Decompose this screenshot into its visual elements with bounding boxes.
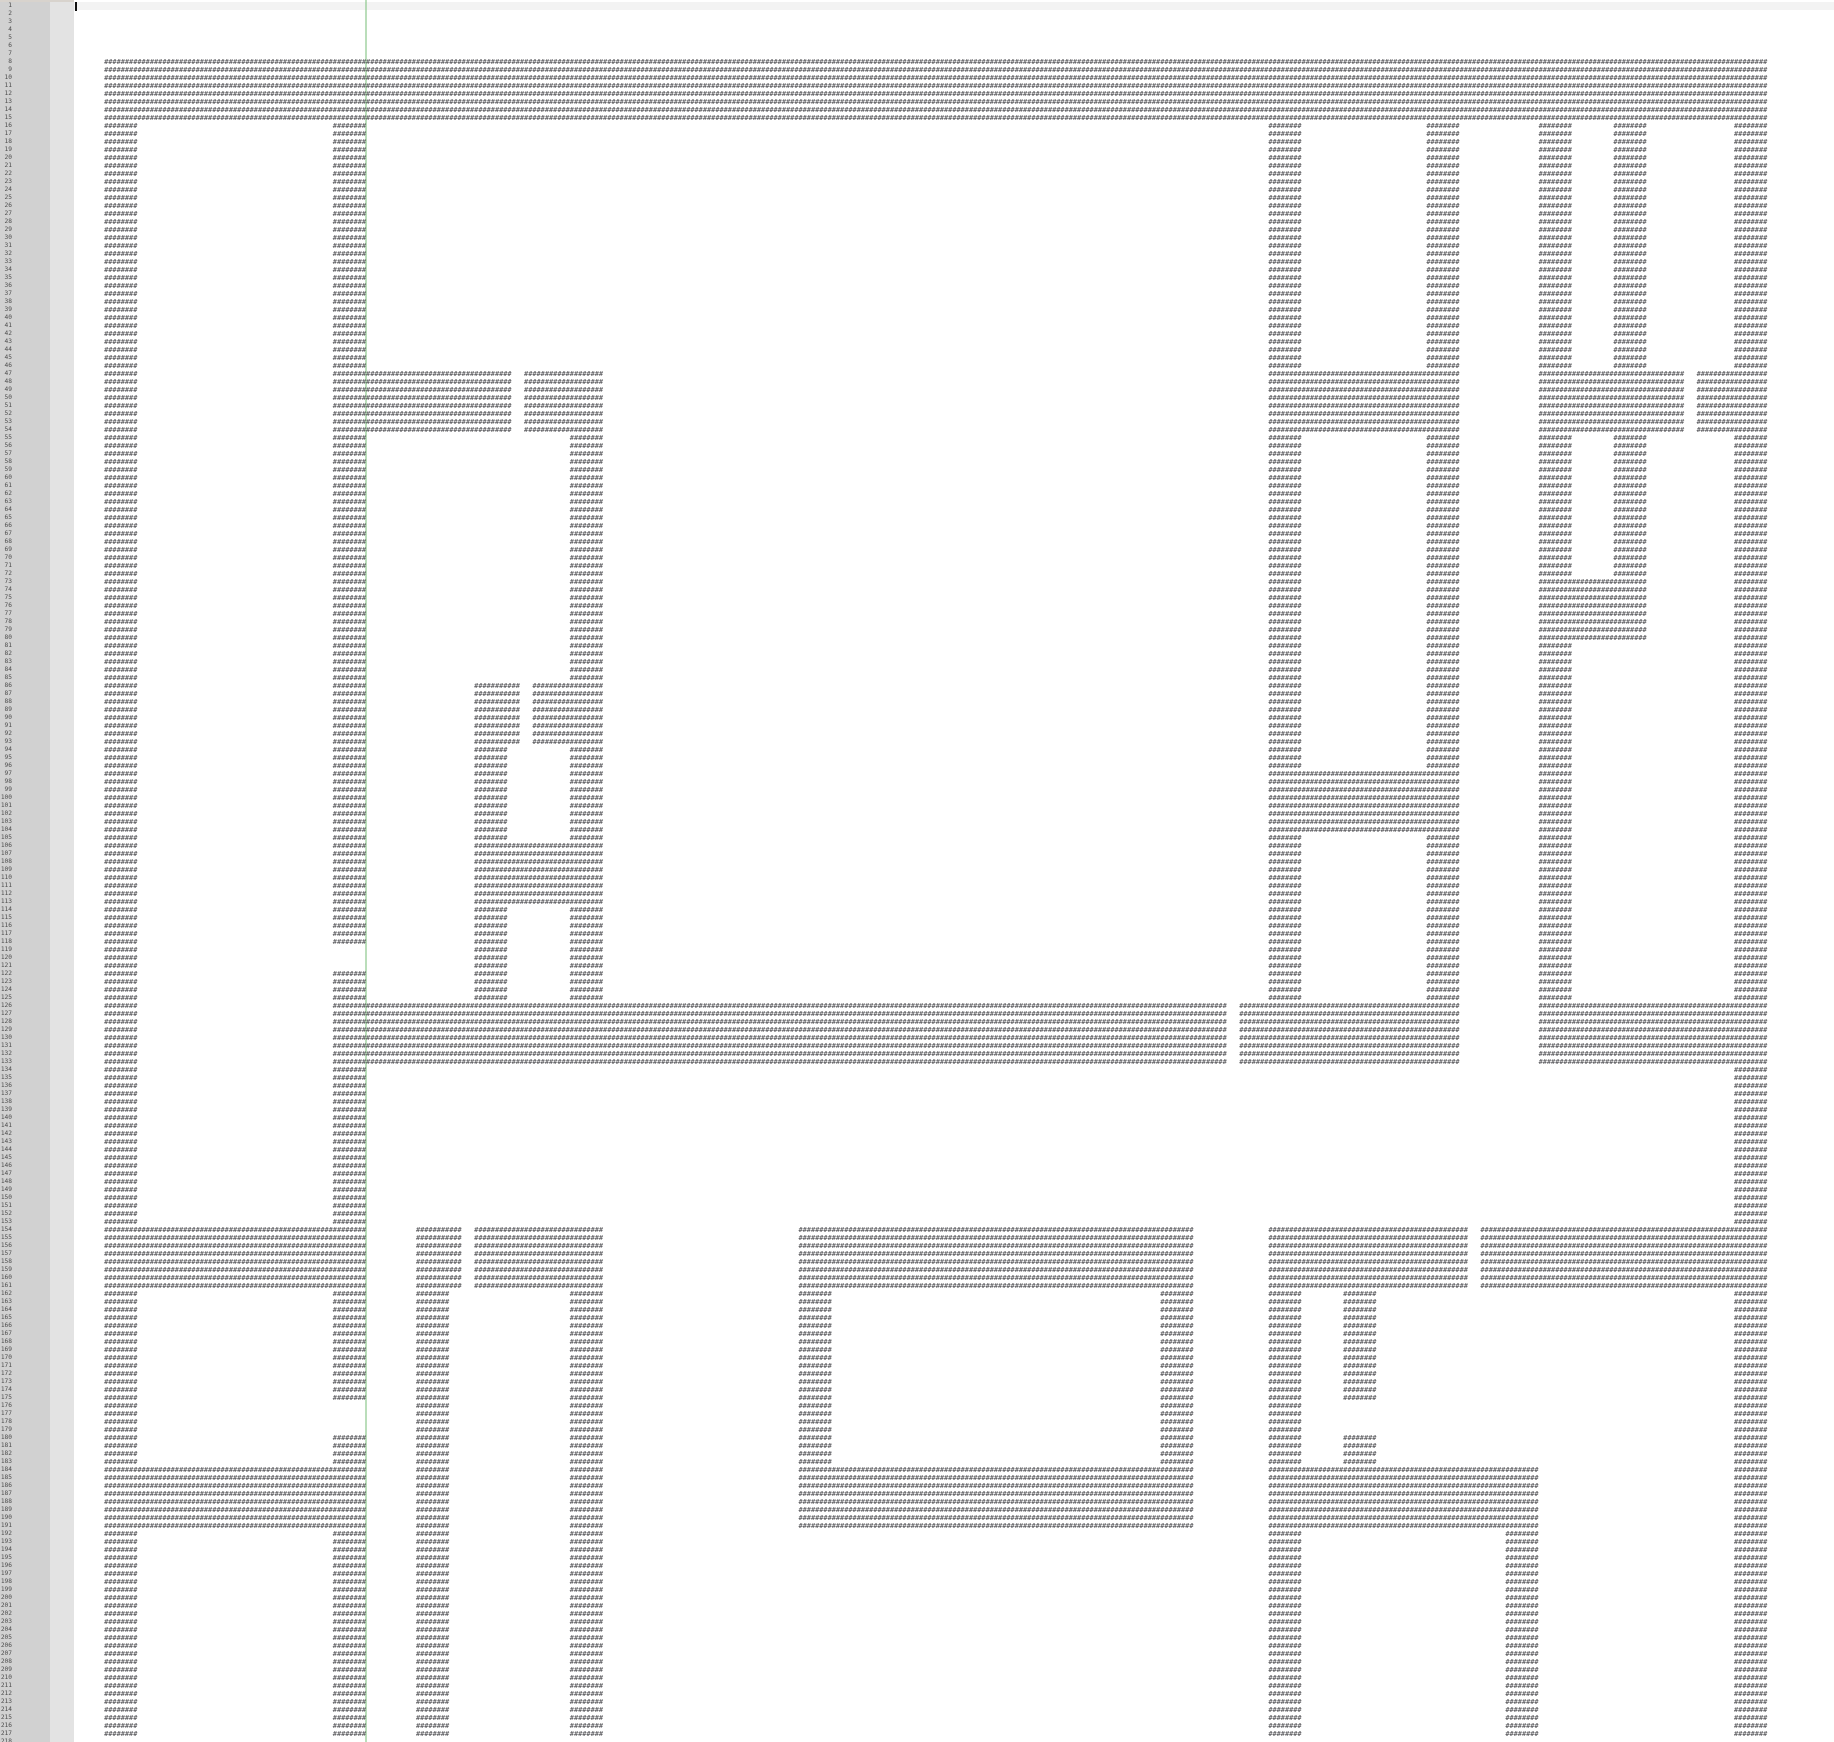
code-region: ########################################… <box>74 0 1834 1742</box>
editor-window: 1 2 3 4 5 6 7 8 9 10 11 12 13 14 15 16 1… <box>0 0 1834 1742</box>
line-number-column[interactable]: 1 2 3 4 5 6 7 8 9 10 11 12 13 14 15 16 1… <box>0 2 12 1742</box>
text-cursor <box>75 2 77 11</box>
editor-text-area[interactable]: ########################################… <box>75 2 1767 1742</box>
gutter-inner-strip <box>50 2 74 1742</box>
